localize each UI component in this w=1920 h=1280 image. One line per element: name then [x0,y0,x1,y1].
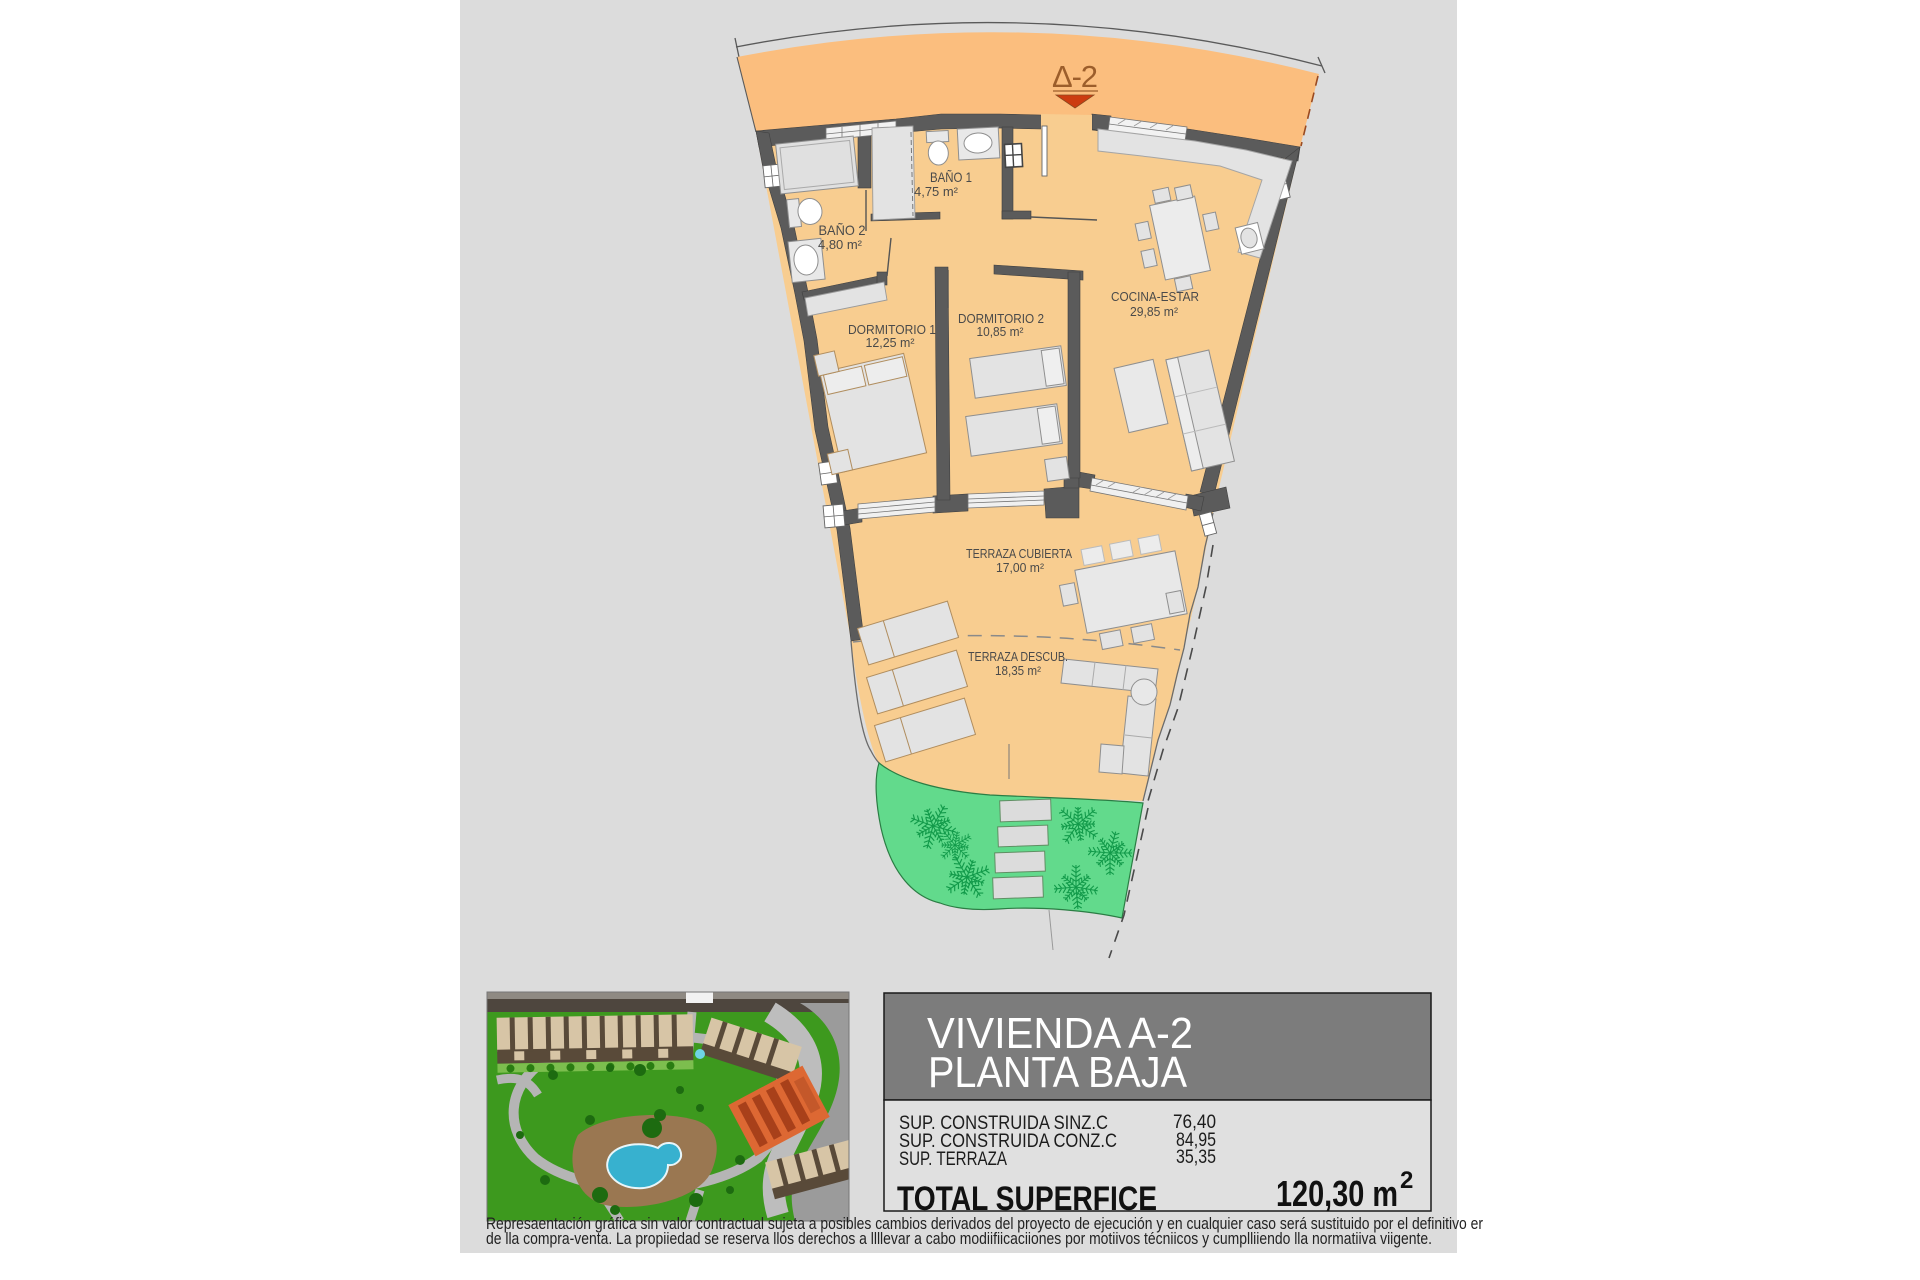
svg-text:120,30 m: 120,30 m [1276,1173,1398,1214]
svg-text:4,75 m²: 4,75 m² [914,184,959,199]
svg-text:TERRAZA DESCUB.: TERRAZA DESCUB. [968,649,1068,664]
svg-text:4,80 m²: 4,80 m² [818,237,863,252]
svg-text:35,35: 35,35 [1176,1147,1216,1168]
svg-text:PLANTA BAJA: PLANTA BAJA [928,1048,1188,1097]
svg-text:BAÑO 1: BAÑO 1 [930,169,972,185]
svg-text:10,85 m²: 10,85 m² [977,324,1025,339]
svg-text:TERRAZA CUBIERTA: TERRAZA CUBIERTA [966,546,1072,561]
svg-text:18,35 m²: 18,35 m² [995,663,1042,678]
svg-text:BAÑO 2: BAÑO 2 [819,222,866,238]
svg-text:de lla compra-venta. La propii: de lla compra-venta. La propiiedad se re… [486,1229,1432,1248]
svg-text:SUP. TERRAZA: SUP. TERRAZA [899,1149,1007,1170]
svg-text:COCINA-ESTAR: COCINA-ESTAR [1111,289,1199,304]
svg-text:Δ-2: Δ-2 [1052,59,1098,94]
svg-text:29,85 m²: 29,85 m² [1130,304,1179,319]
svg-text:12,25 m²: 12,25 m² [866,335,916,350]
svg-text:2: 2 [1400,1167,1413,1194]
svg-text:17,00 m²: 17,00 m² [996,560,1045,575]
svg-text:TOTAL SUPERFICE: TOTAL SUPERFICE [897,1180,1157,1218]
